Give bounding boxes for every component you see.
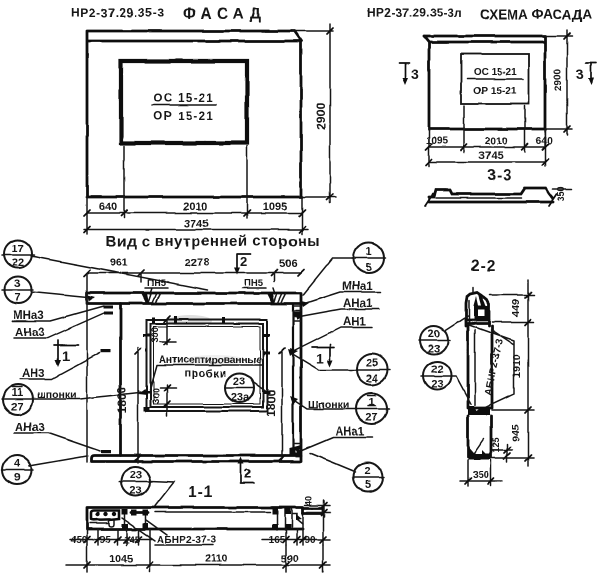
svg-text:23: 23: [129, 485, 141, 497]
svg-text:300: 300: [151, 388, 162, 404]
svg-text:АНа1: АНа1: [343, 298, 373, 310]
svg-text:2278: 2278: [185, 257, 209, 269]
svg-text:МНа1: МНа1: [342, 281, 373, 293]
svg-text:17: 17: [12, 243, 24, 255]
svg-text:640: 640: [99, 201, 117, 213]
svg-text:25: 25: [366, 358, 378, 370]
svg-text:2: 2: [244, 466, 251, 481]
svg-text:1: 1: [62, 348, 70, 364]
svg-text:3: 3: [411, 66, 419, 82]
svg-text:20: 20: [428, 328, 440, 340]
svg-text:1910: 1910: [511, 354, 523, 378]
svg-text:24: 24: [366, 373, 379, 385]
svg-text:945: 945: [510, 424, 522, 442]
svg-text:40: 40: [304, 496, 314, 506]
svg-text:ОР 15-21: ОР 15-21: [154, 111, 214, 123]
svg-text:23: 23: [233, 376, 245, 388]
svg-text:300: 300: [150, 327, 161, 343]
svg-text:1095: 1095: [426, 136, 449, 147]
svg-text:1800: 1800: [115, 386, 129, 413]
svg-text:ОС 15-21: ОС 15-21: [473, 67, 517, 78]
svg-text:449: 449: [510, 299, 522, 317]
svg-text:2-2: 2-2: [471, 258, 496, 275]
svg-text:2900: 2900: [553, 68, 564, 91]
svg-text:ОР 15-21: ОР 15-21: [474, 86, 517, 97]
svg-text:АНа1: АНа1: [335, 426, 365, 438]
svg-text:22: 22: [12, 257, 24, 269]
svg-text:пробки: пробки: [184, 368, 227, 380]
svg-text:590: 590: [281, 553, 299, 565]
svg-text:23: 23: [129, 470, 141, 482]
svg-text:1: 1: [365, 246, 371, 258]
svg-text:961: 961: [110, 257, 128, 269]
svg-text:4: 4: [14, 458, 21, 470]
svg-text:165: 165: [269, 535, 286, 546]
svg-text:ОС 15-21: ОС 15-21: [153, 93, 214, 105]
svg-text:7: 7: [14, 292, 20, 304]
svg-text:2110: 2110: [205, 553, 228, 565]
svg-text:АН1: АН1: [343, 316, 367, 328]
svg-text:5: 5: [365, 262, 371, 274]
svg-text:9: 9: [14, 472, 20, 484]
svg-text:3-3: 3-3: [487, 167, 512, 184]
svg-text:450: 450: [71, 535, 88, 546]
svg-text:3: 3: [14, 278, 20, 290]
svg-text:350: 350: [556, 186, 566, 201]
svg-text:2010: 2010: [485, 136, 508, 147]
svg-text:АНа3: АНа3: [15, 422, 44, 434]
svg-text:90: 90: [304, 535, 316, 546]
svg-text:145: 145: [124, 535, 141, 546]
svg-text:23а: 23а: [231, 392, 250, 404]
svg-text:2: 2: [365, 465, 371, 477]
svg-text:2900: 2900: [314, 102, 328, 129]
svg-text:23: 23: [431, 379, 443, 391]
svg-text:АН3: АН3: [22, 368, 45, 380]
svg-text:22: 22: [431, 364, 443, 376]
svg-text:1045: 1045: [109, 553, 133, 565]
svg-text:5: 5: [365, 479, 371, 491]
svg-text:640: 640: [536, 136, 553, 147]
svg-text:ФАСАД: ФАСАД: [183, 6, 266, 23]
svg-text:125: 125: [491, 437, 501, 452]
svg-text:350: 350: [473, 470, 490, 481]
svg-text:Антисептированные: Антисептированные: [159, 354, 262, 366]
svg-text:НР2-37.29.35-3: НР2-37.29.35-3: [71, 6, 164, 20]
svg-text:НР2-37.29.35-3л: НР2-37.29.35-3л: [367, 6, 462, 20]
svg-text:1-1: 1-1: [188, 484, 213, 501]
svg-text:11: 11: [11, 387, 23, 399]
svg-text:95: 95: [99, 535, 111, 546]
svg-text:23: 23: [428, 343, 440, 355]
svg-text:АНа3: АНа3: [15, 327, 44, 339]
svg-text:506: 506: [279, 258, 297, 270]
svg-text:1095: 1095: [263, 201, 287, 213]
svg-text:3: 3: [576, 66, 584, 82]
svg-text:27: 27: [365, 412, 377, 424]
svg-text:27: 27: [11, 401, 23, 413]
svg-text:Вид с внутренней стороны: Вид с внутренней стороны: [106, 233, 321, 250]
svg-text:МНа3: МНа3: [13, 310, 44, 322]
svg-text:2: 2: [240, 254, 247, 269]
svg-text:2010: 2010: [183, 201, 207, 213]
svg-text:3745: 3745: [184, 218, 208, 230]
svg-text:СХЕМА ФАСАДА: СХЕМА ФАСАДА: [480, 7, 592, 22]
svg-text:1: 1: [316, 350, 324, 366]
svg-text:3745: 3745: [479, 150, 503, 162]
